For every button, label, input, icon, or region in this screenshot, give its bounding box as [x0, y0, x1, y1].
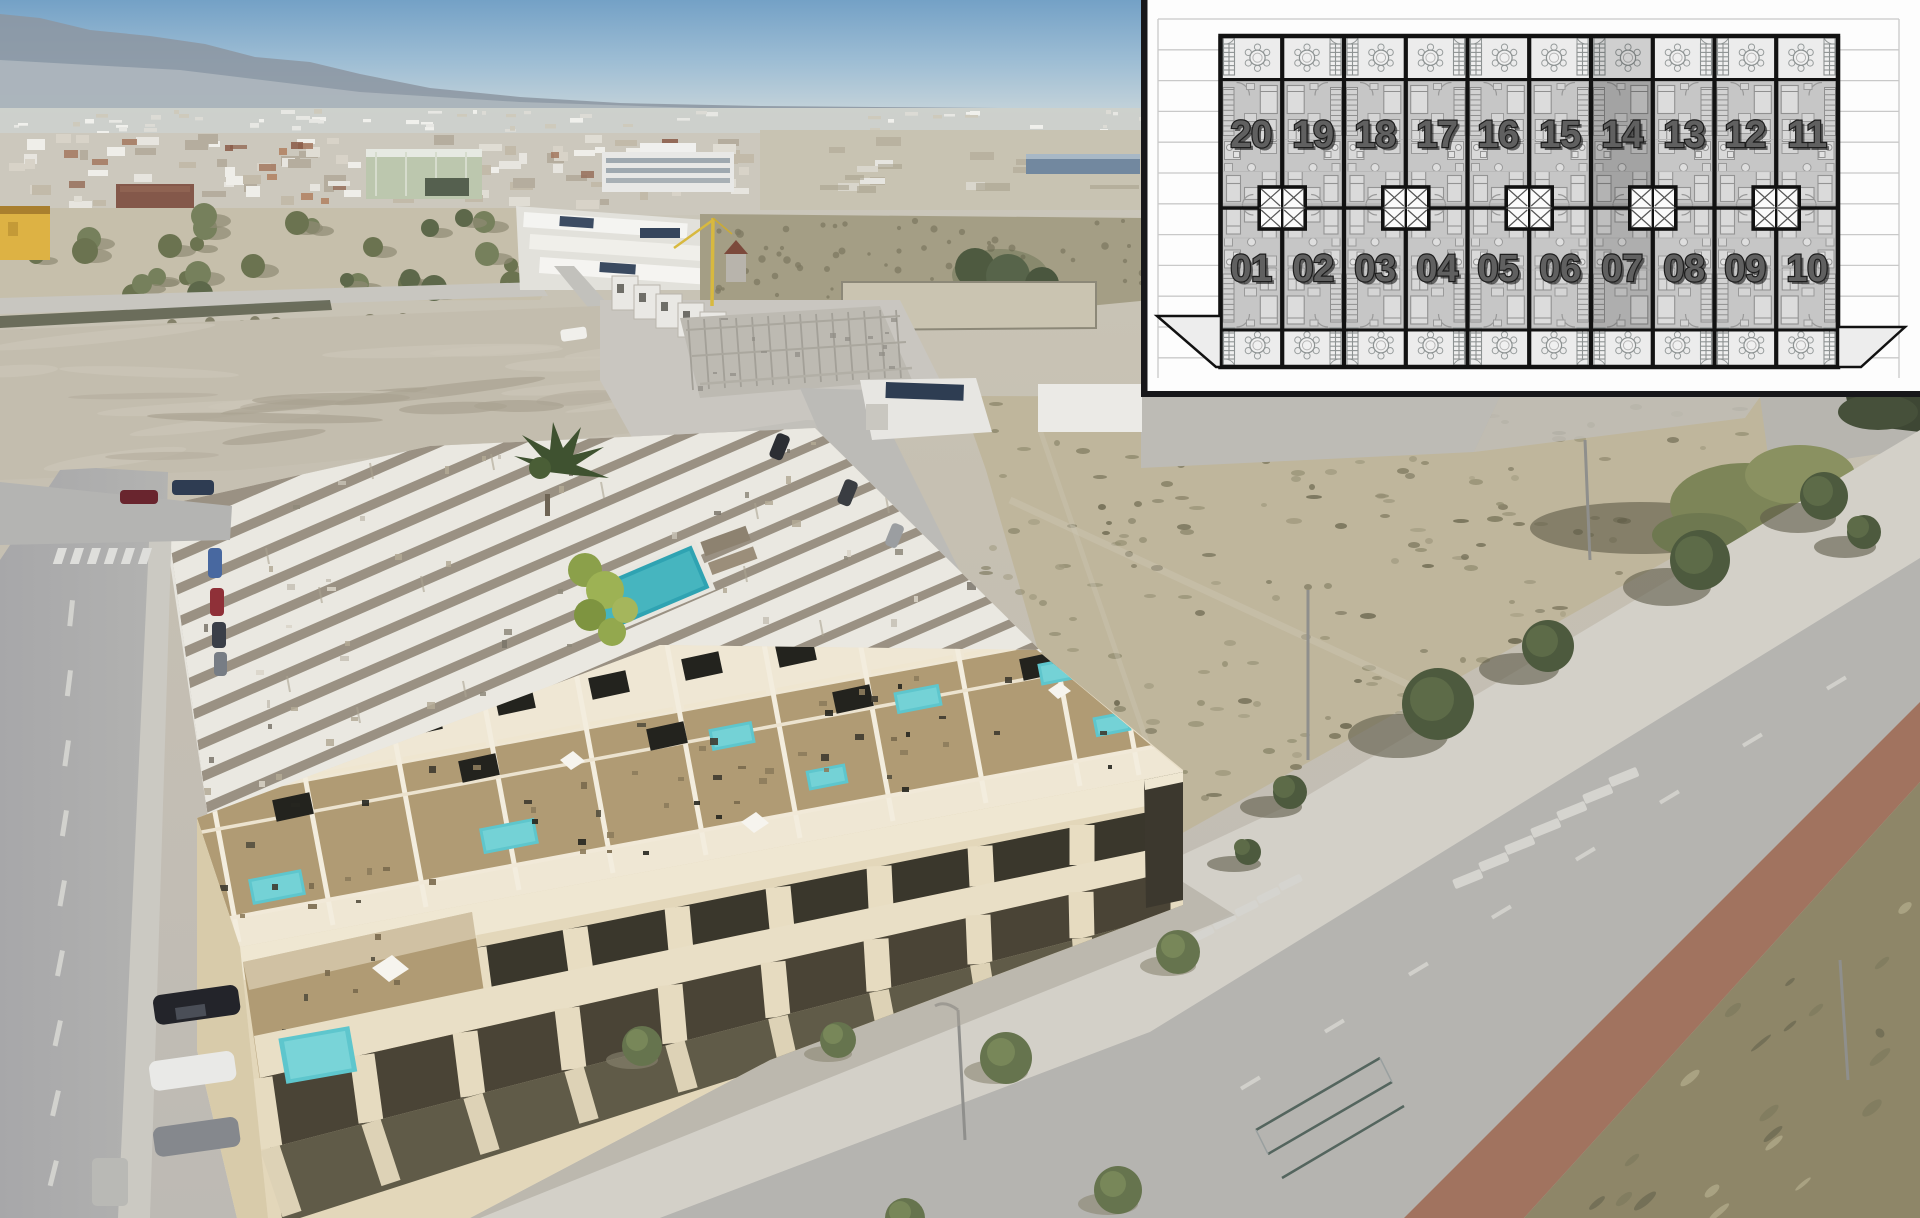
svg-text:18: 18 [1354, 114, 1395, 156]
svg-text:09: 09 [1724, 248, 1765, 290]
svg-text:01: 01 [1230, 248, 1272, 290]
svg-text:08: 08 [1663, 248, 1704, 290]
svg-text:02: 02 [1292, 248, 1333, 290]
svg-text:13: 13 [1663, 114, 1704, 156]
svg-text:16: 16 [1477, 114, 1518, 156]
svg-text:03: 03 [1354, 248, 1395, 290]
svg-text:14: 14 [1601, 114, 1643, 156]
svg-text:12: 12 [1724, 114, 1765, 156]
svg-text:17: 17 [1416, 114, 1457, 156]
svg-text:11: 11 [1787, 114, 1827, 156]
svg-text:15: 15 [1539, 114, 1581, 156]
svg-text:06: 06 [1539, 248, 1580, 290]
svg-text:05: 05 [1477, 248, 1519, 290]
svg-text:07: 07 [1601, 248, 1642, 290]
svg-text:19: 19 [1292, 114, 1333, 156]
svg-text:10: 10 [1786, 248, 1827, 290]
svg-text:20: 20 [1230, 114, 1271, 156]
svg-text:04: 04 [1416, 248, 1458, 290]
